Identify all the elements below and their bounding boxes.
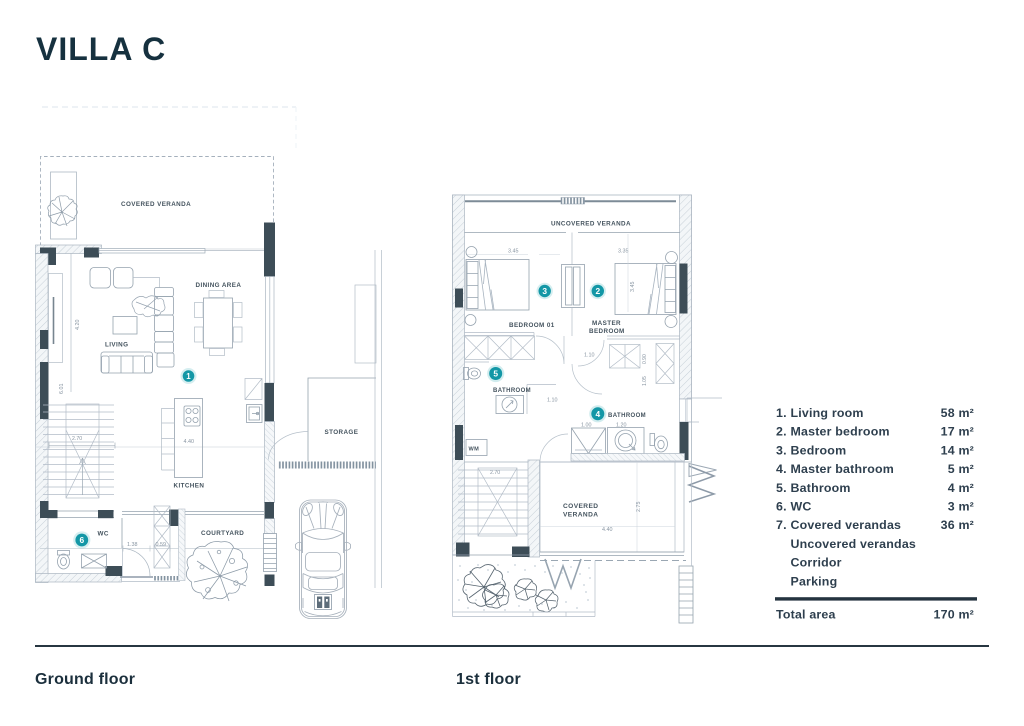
svg-text:5 m²: 5 m² [948,462,974,476]
svg-text:3.45: 3.45 [508,249,519,255]
svg-text:Covered verandas: Covered verandas [791,518,902,532]
svg-text:BATHROOM: BATHROOM [493,388,531,394]
svg-text:Bathroom: Bathroom [791,481,851,495]
svg-text:Master bedroom: Master bedroom [791,425,890,439]
svg-text:17 m²: 17 m² [941,425,974,439]
svg-text:Parking: Parking [791,574,838,588]
svg-text:4.40: 4.40 [602,527,613,533]
svg-text:6.: 6. [776,500,787,514]
svg-text:5.: 5. [776,481,787,495]
svg-text:3: 3 [542,286,547,296]
svg-text:170 m²: 170 m² [934,608,974,622]
svg-text:7.: 7. [776,518,787,532]
svg-text:3 m²: 3 m² [948,500,974,514]
svg-text:2.70: 2.70 [72,436,82,442]
svg-text:STORAGE: STORAGE [325,429,359,436]
svg-text:36 m²: 36 m² [941,518,974,532]
svg-text:4.20: 4.20 [75,320,81,331]
svg-text:BEDROOM 01: BEDROOM 01 [509,322,555,329]
svg-text:Ground floor: Ground floor [35,671,135,688]
svg-text:4: 4 [595,409,600,419]
svg-text:Master bathroom: Master bathroom [791,462,895,476]
svg-text:UNCOVERED VERANDA: UNCOVERED VERANDA [551,221,631,228]
svg-text:DINING AREA: DINING AREA [196,282,242,289]
svg-text:WC: WC [98,531,109,538]
svg-text:COVERED VERANDA: COVERED VERANDA [121,201,191,208]
svg-text:Bedroom: Bedroom [791,443,847,457]
svg-text:0.90: 0.90 [642,354,648,364]
svg-text:6: 6 [79,535,84,545]
svg-text:Uncovered verandas: Uncovered verandas [791,537,917,551]
svg-text:6.01: 6.01 [59,384,65,395]
svg-text:WM: WM [469,447,480,453]
svg-text:Corridor: Corridor [791,556,842,570]
svg-text:4.: 4. [776,462,787,476]
svg-text:14 m²: 14 m² [941,443,974,457]
svg-text:3.45: 3.45 [630,282,636,293]
svg-text:LIVING: LIVING [105,342,128,349]
svg-text:VERANDA: VERANDA [563,512,598,519]
svg-text:58 m²: 58 m² [941,406,974,420]
svg-text:2.: 2. [776,425,787,439]
svg-text:BEDROOM: BEDROOM [589,328,625,335]
svg-text:Living room: Living room [791,406,864,420]
svg-text:COVERED: COVERED [563,503,598,510]
svg-text:VILLA C: VILLA C [36,31,166,67]
svg-text:BATHROOM: BATHROOM [608,413,646,419]
svg-text:1.38: 1.38 [127,542,138,548]
svg-text:2.70: 2.70 [490,470,500,476]
svg-text:Total area: Total area [776,608,836,622]
svg-text:1.10: 1.10 [547,398,558,404]
svg-text:1.10: 1.10 [584,353,595,359]
svg-text:1st floor: 1st floor [456,671,521,688]
svg-text:0.59: 0.59 [156,542,167,548]
svg-text:WC: WC [791,500,812,514]
svg-text:MASTER: MASTER [592,320,621,327]
svg-text:COURTYARD: COURTYARD [201,530,244,537]
svg-text:2: 2 [595,286,600,296]
svg-text:KITCHEN: KITCHEN [174,483,205,490]
svg-text:1.: 1. [776,406,787,420]
svg-text:1.05: 1.05 [642,376,648,386]
svg-text:1: 1 [186,372,191,381]
svg-text:5: 5 [493,369,498,379]
svg-text:3.: 3. [776,443,787,457]
svg-text:3.35: 3.35 [618,249,629,255]
svg-text:4 m²: 4 m² [948,481,974,495]
svg-text:4.40: 4.40 [184,439,195,445]
